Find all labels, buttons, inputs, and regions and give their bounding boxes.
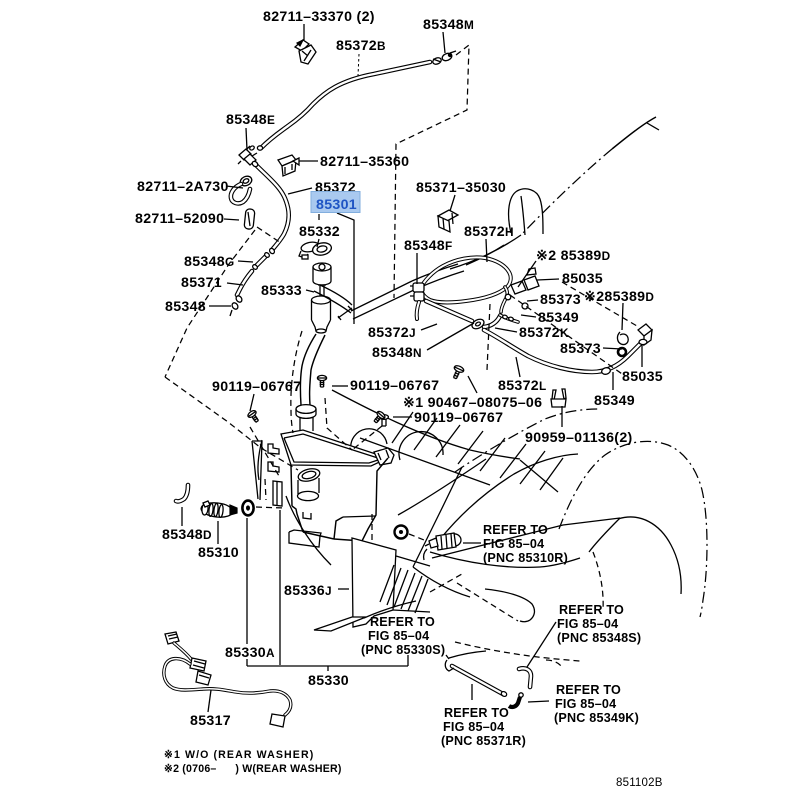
svg-text:85348E: 85348E <box>226 112 275 128</box>
svg-text:(PNC 85371R): (PNC 85371R) <box>441 734 526 748</box>
svg-text:85330: 85330 <box>308 673 349 689</box>
svg-text:85348F: 85348F <box>404 238 452 254</box>
svg-text:85373: 85373 <box>560 341 601 357</box>
svg-text:85348: 85348 <box>165 299 206 315</box>
svg-text:85371: 85371 <box>181 275 222 291</box>
svg-text:85371–35030: 85371–35030 <box>416 180 506 196</box>
svg-text:(PNC 85348S): (PNC 85348S) <box>557 631 641 645</box>
svg-text:85310: 85310 <box>198 545 239 561</box>
svg-text:85301: 85301 <box>316 197 357 213</box>
svg-text:85317: 85317 <box>190 713 231 729</box>
svg-text:REFER TO: REFER TO <box>559 603 624 617</box>
svg-text:85348N: 85348N <box>372 345 422 361</box>
svg-text:85372H: 85372H <box>464 224 514 240</box>
svg-text:82711–52090: 82711–52090 <box>135 211 224 227</box>
svg-text:85035: 85035 <box>562 271 603 287</box>
svg-text:85372B: 85372B <box>336 38 386 54</box>
svg-text:REFER TO: REFER TO <box>483 523 548 537</box>
svg-text:85348M: 85348M <box>423 17 474 33</box>
svg-text:85333: 85333 <box>261 283 302 299</box>
svg-text:REFER TO: REFER TO <box>370 615 435 629</box>
svg-text:FIG 85–04: FIG 85–04 <box>443 720 504 734</box>
svg-text:※1 W/O (REAR WASHER): ※1 W/O (REAR WASHER) <box>164 749 314 761</box>
svg-text:REFER TO: REFER TO <box>444 706 509 720</box>
svg-text:851102B: 851102B <box>616 777 663 789</box>
svg-text:FIG 85–04: FIG 85–04 <box>368 629 429 643</box>
svg-text:※2 (0706– ) W(REAR WASHER: ※2 (0706– ) W(REAR WASHER) <box>164 763 342 775</box>
svg-text:(PNC 85349K): (PNC 85349K) <box>554 711 639 725</box>
svg-text:85372L: 85372L <box>498 378 546 394</box>
svg-text:90119–06767: 90119–06767 <box>414 410 503 426</box>
svg-text:(PNC 85310R): (PNC 85310R) <box>483 551 568 565</box>
svg-text:FIG 85–04: FIG 85–04 <box>557 617 618 631</box>
svg-text:85372J: 85372J <box>368 325 416 341</box>
svg-text:※1 90467–08075–06: ※1 90467–08075–06 <box>403 395 542 411</box>
svg-text:※285389D: ※285389D <box>584 289 654 305</box>
svg-text:85035: 85035 <box>622 369 663 385</box>
svg-text:※2 85389D: ※2 85389D <box>536 248 611 264</box>
svg-text:85336J: 85336J <box>284 583 332 599</box>
svg-text:(PNC 85330S): (PNC 85330S) <box>361 643 445 657</box>
svg-text:85373: 85373 <box>540 292 581 308</box>
svg-text:85348G: 85348G <box>184 254 234 270</box>
svg-text:82711–2A730: 82711–2A730 <box>137 179 229 195</box>
svg-text:85348D: 85348D <box>162 527 212 543</box>
svg-text:90119–06767: 90119–06767 <box>350 378 439 394</box>
svg-text:REFER TO: REFER TO <box>556 683 621 697</box>
svg-text:82711–33370 (2): 82711–33370 (2) <box>263 9 375 25</box>
svg-text:90959–01136(2): 90959–01136(2) <box>525 430 633 446</box>
svg-text:90119–06767: 90119–06767 <box>212 379 301 395</box>
svg-text:85372K: 85372K <box>519 325 569 341</box>
svg-text:85330A: 85330A <box>225 645 275 661</box>
svg-text:FIG 85–04: FIG 85–04 <box>555 697 616 711</box>
svg-text:82711–35360: 82711–35360 <box>320 154 409 170</box>
svg-text:85332: 85332 <box>299 224 340 240</box>
svg-text:85349: 85349 <box>538 310 579 326</box>
svg-text:85349: 85349 <box>594 393 635 409</box>
svg-text:FIG 85–04: FIG 85–04 <box>483 537 544 551</box>
